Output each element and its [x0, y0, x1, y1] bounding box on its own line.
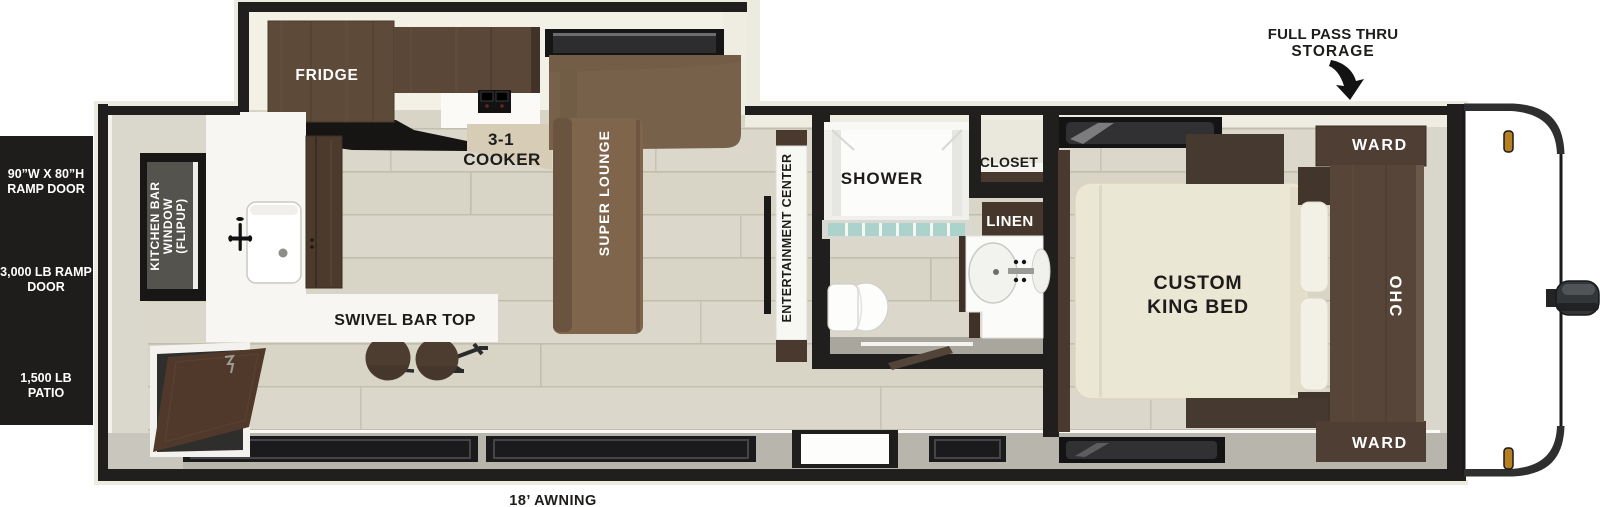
svg-text:(FLIPUP): (FLIPUP): [174, 198, 188, 253]
svg-text:ENTERTAINMENT CENTER: ENTERTAINMENT CENTER: [780, 154, 794, 323]
svg-text:PATIO: PATIO: [28, 386, 65, 400]
svg-text:LINEN: LINEN: [986, 213, 1034, 230]
svg-text:3,000 LB RAMP: 3,000 LB RAMP: [0, 265, 92, 279]
svg-text:FRIDGE: FRIDGE: [295, 67, 358, 84]
svg-text:KITCHEN BAR: KITCHEN BAR: [148, 181, 162, 270]
svg-text:FULL PASS THRU: FULL PASS THRU: [1268, 26, 1399, 43]
svg-text:3-1: 3-1: [488, 130, 514, 149]
svg-text:OHC: OHC: [1386, 276, 1404, 319]
svg-text:RAMP DOOR: RAMP DOOR: [7, 182, 85, 196]
svg-text:WINDOW: WINDOW: [161, 198, 175, 254]
svg-text:90”W X 80”H: 90”W X 80”H: [8, 167, 84, 181]
svg-text:1,500 LB: 1,500 LB: [20, 371, 71, 385]
svg-text:CLOSET: CLOSET: [980, 154, 1039, 170]
svg-text:WARD: WARD: [1352, 435, 1408, 452]
svg-text:SHOWER: SHOWER: [841, 169, 924, 188]
svg-text:SUPER LOUNGE: SUPER LOUNGE: [596, 130, 612, 256]
svg-text:COOKER: COOKER: [463, 150, 541, 169]
svg-text:KING BED: KING BED: [1147, 296, 1249, 318]
svg-text:STORAGE: STORAGE: [1291, 43, 1374, 60]
svg-text:SWIVEL BAR TOP: SWIVEL BAR TOP: [334, 312, 475, 329]
svg-text:18’ AWNING: 18’ AWNING: [509, 493, 596, 507]
svg-text:WARD: WARD: [1352, 137, 1408, 154]
svg-text:DOOR: DOOR: [27, 280, 65, 294]
svg-text:CUSTOM: CUSTOM: [1154, 272, 1243, 294]
